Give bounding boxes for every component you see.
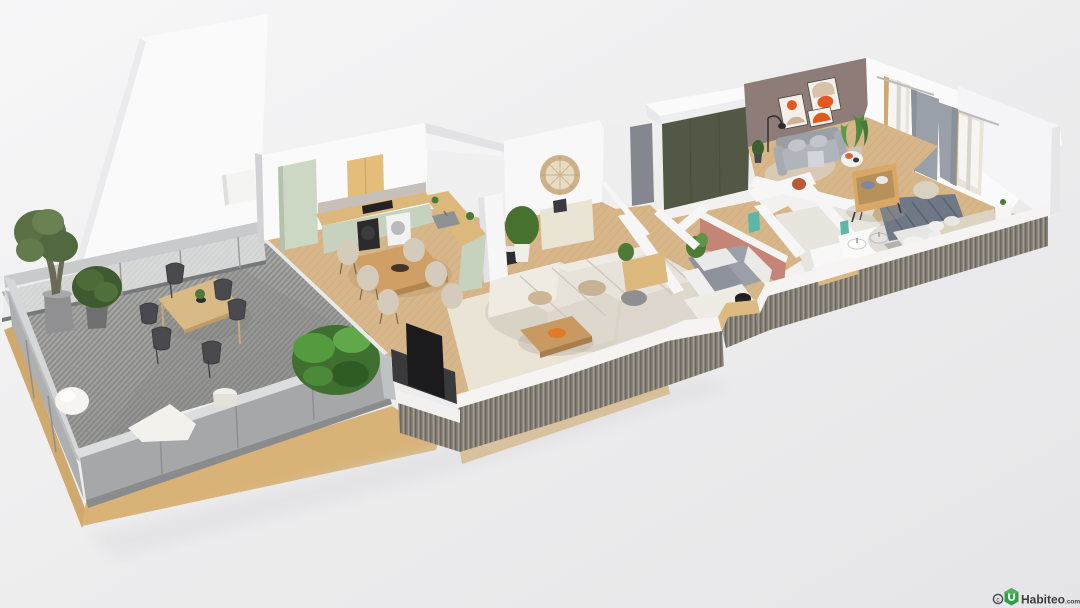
svg-text:c: c [996,597,1000,604]
